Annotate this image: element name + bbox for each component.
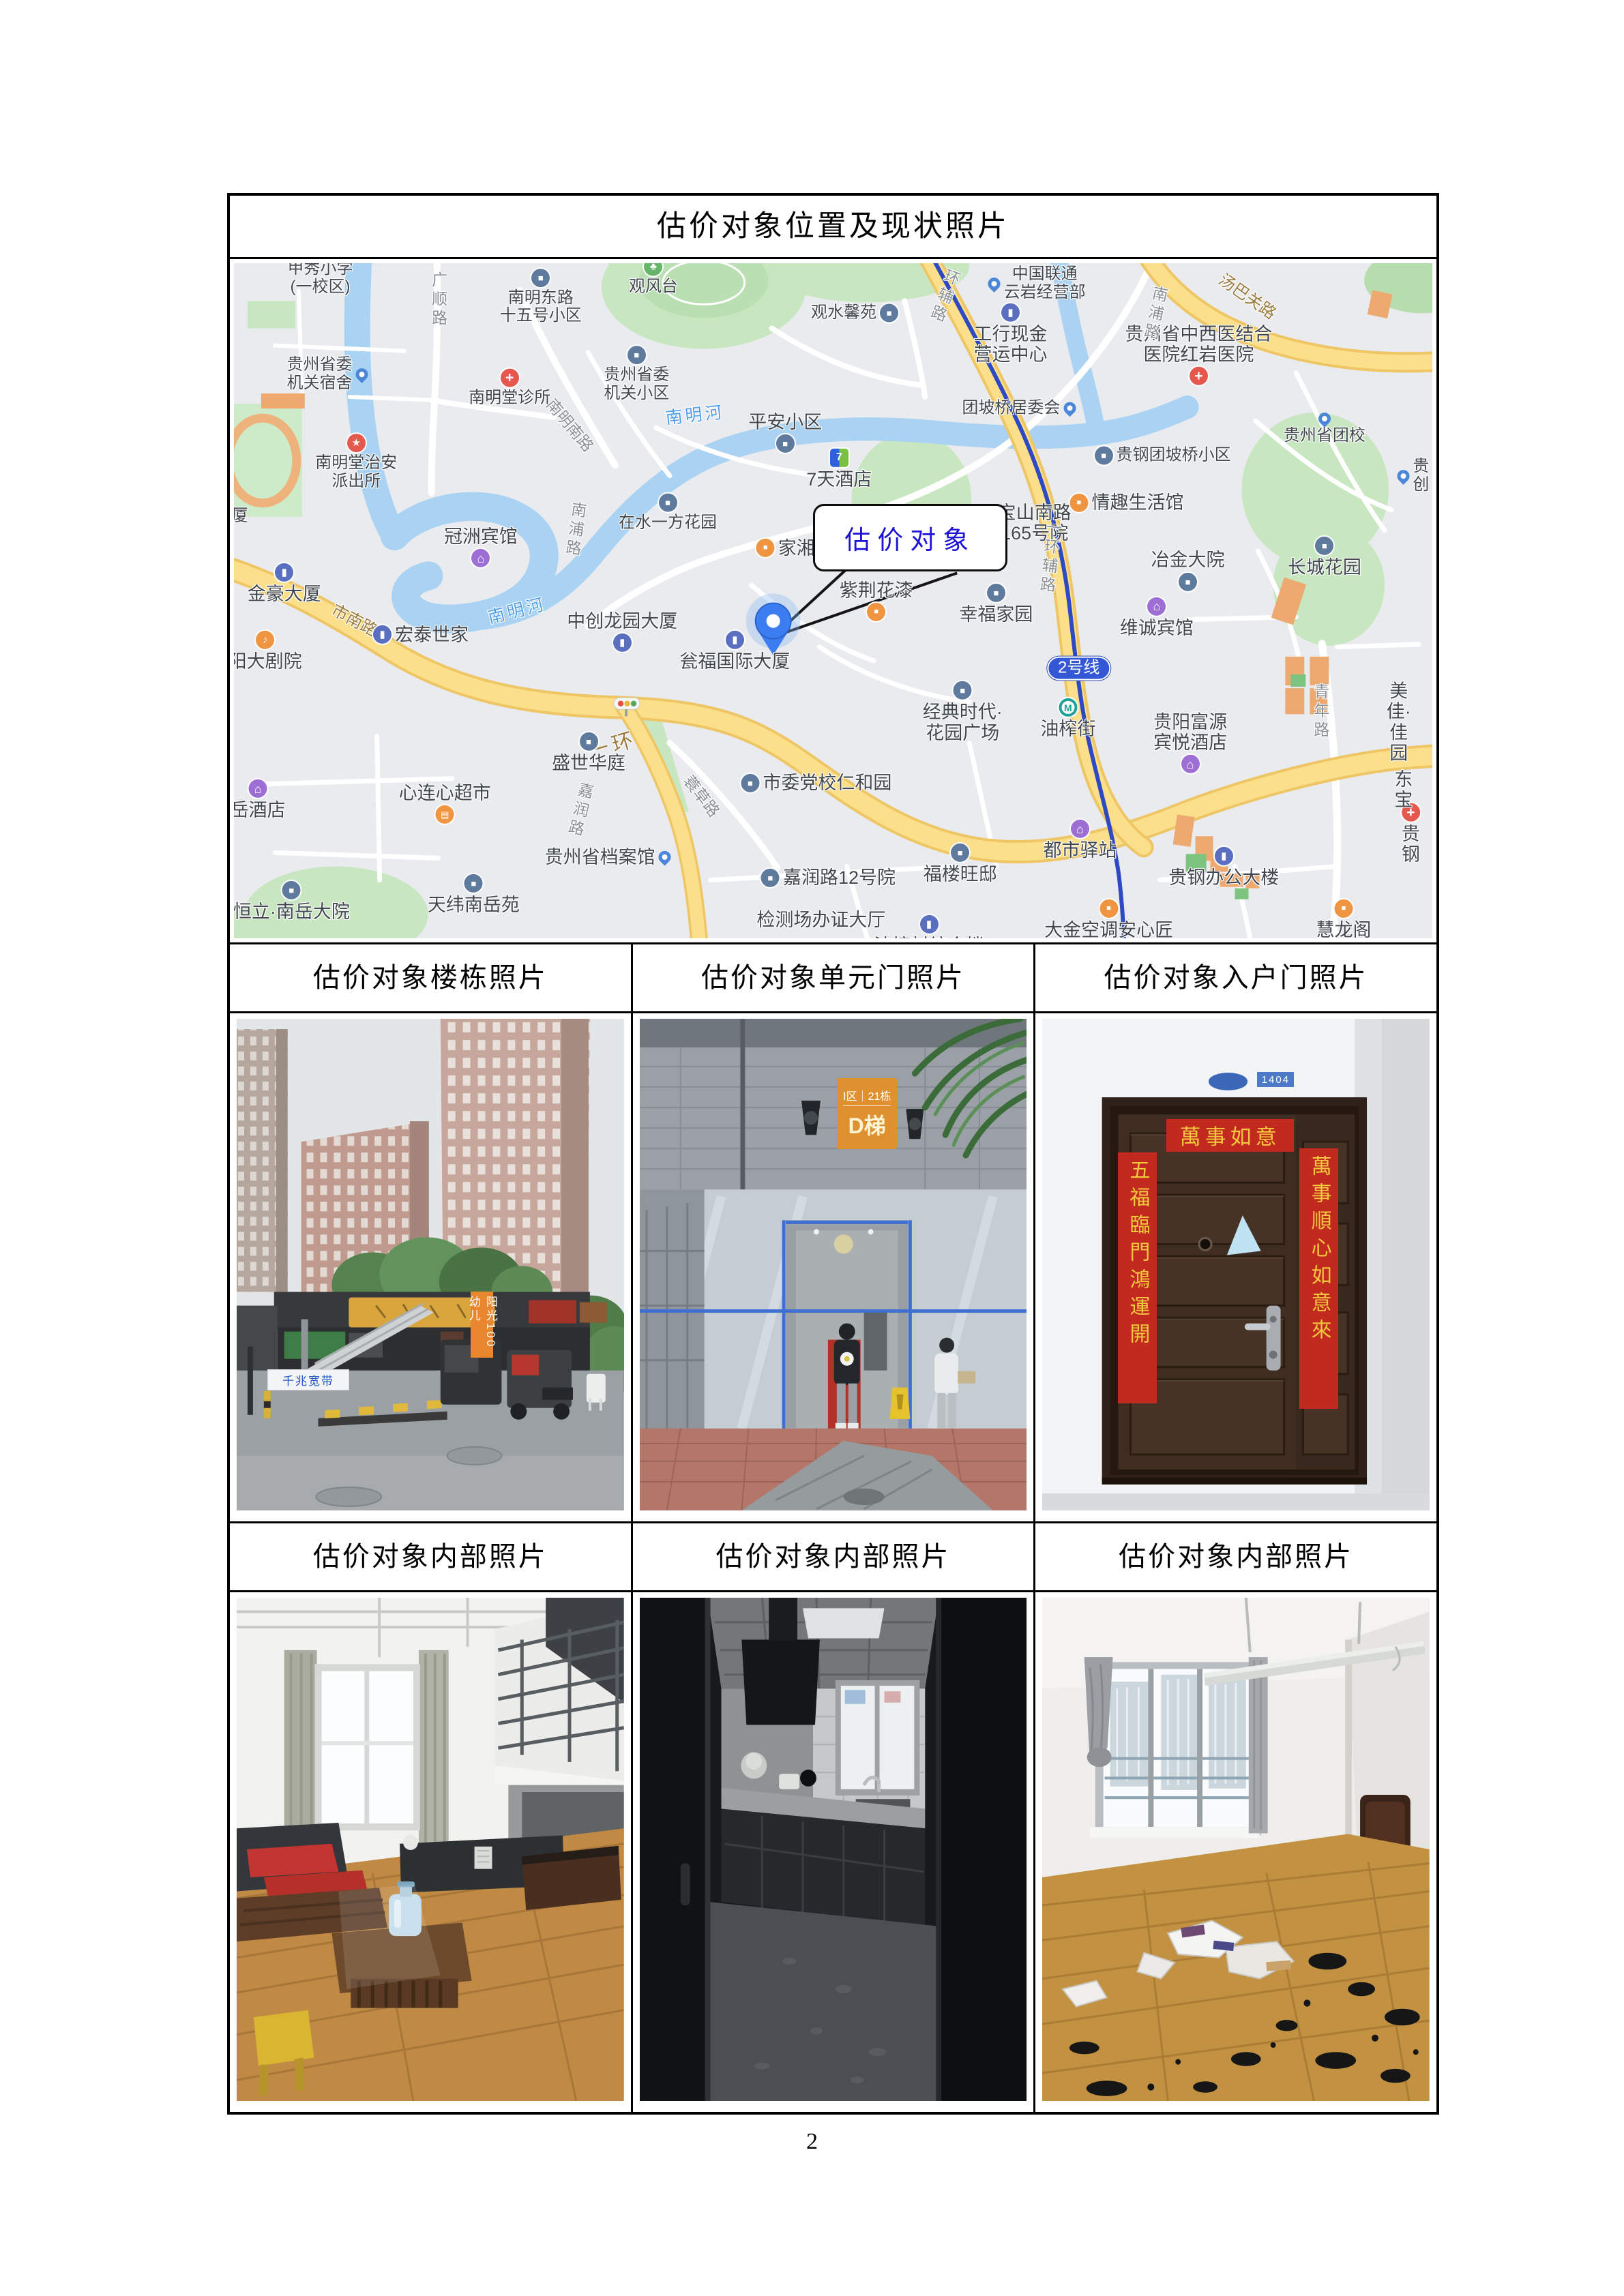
map-pin-icon bbox=[986, 275, 1003, 292]
map-label: ♣观风台 bbox=[629, 263, 678, 296]
map-label: 甲秀小学 (一校区) bbox=[288, 263, 353, 297]
shop-icon: ■ bbox=[756, 539, 775, 557]
building-icon: ▮ bbox=[920, 915, 939, 934]
map-label: ■盛世华庭 bbox=[552, 732, 625, 773]
map-label: 检测场办证大厅 bbox=[756, 910, 885, 930]
building-icon: ▮ bbox=[1215, 847, 1233, 865]
map-label: 77天酒店 bbox=[806, 449, 872, 490]
photo-row-bottom bbox=[230, 1590, 1436, 2112]
map-label: 贵创 bbox=[1397, 458, 1429, 494]
door-plate-left bbox=[1209, 1073, 1247, 1090]
map-label: ■福楼旺邸 bbox=[924, 844, 997, 884]
map-label: ▮工行现金 营运中心 bbox=[974, 303, 1048, 365]
map-label: ■天纬南岳苑 bbox=[428, 874, 520, 915]
map-label: ▮宏泰世家 bbox=[373, 624, 469, 644]
location-map: 甲秀小学 (一校区)广顺路■南明东路 十五号小区♣观风台观水馨苑■中国联通 云岩… bbox=[234, 263, 1432, 938]
building-icon: ▮ bbox=[275, 563, 293, 582]
header-entry-door-photo: 估价对象入户门照片 bbox=[1033, 944, 1436, 1011]
caution-sign bbox=[889, 1388, 910, 1419]
page-number: 2 bbox=[0, 2129, 1624, 2155]
theater-icon: ♪ bbox=[256, 631, 274, 649]
door-photo-art bbox=[1042, 1019, 1430, 1510]
map-label: 中创龙园大厦▮ bbox=[567, 610, 677, 651]
building-icon: ▮ bbox=[1001, 303, 1020, 322]
map-label: ♪阳大剧院 bbox=[234, 631, 302, 672]
map-label: 团坡桥居委会 bbox=[962, 399, 1076, 417]
photo-unit-entrance: Ⅰ区｜21栋 D梯 bbox=[640, 1019, 1027, 1510]
map-label: ■嘉润路12号院 bbox=[761, 867, 896, 888]
photo-entry-door: 1404 萬事如意 五福臨門鴻運開 萬事順心如意來 bbox=[1042, 1019, 1430, 1510]
shop-icon: ■ bbox=[1099, 899, 1118, 918]
map-label: ▮金豪大厦 bbox=[248, 563, 321, 604]
hotel-icon: ⌂ bbox=[1181, 755, 1200, 773]
map-label: ▮油榨村综合楼 bbox=[874, 915, 984, 938]
residential-area-icon: ■ bbox=[282, 880, 301, 899]
map-label: ⌂岳酒店 bbox=[234, 779, 286, 820]
photo-building: 阳光100幼儿 千兆宽带 bbox=[237, 1019, 624, 1510]
residential-area-icon: ■ bbox=[628, 346, 646, 364]
header-building-photo: 估价对象楼栋照片 bbox=[230, 944, 631, 1011]
entrance-photo-art bbox=[640, 1019, 1027, 1510]
residential-area-icon: ■ bbox=[776, 434, 795, 453]
map-pin-icon bbox=[1061, 400, 1078, 417]
residential-area-icon: ■ bbox=[880, 304, 898, 323]
map-label: ⌂维诚宾馆 bbox=[1120, 597, 1194, 638]
map-label: ★南明堂治安 派出所 bbox=[315, 434, 397, 491]
residential-area-icon: ■ bbox=[1315, 537, 1333, 555]
door-banner: 萬事如意 bbox=[1166, 1119, 1294, 1152]
map-label: 贵州省档案馆 bbox=[545, 847, 671, 867]
hotel-icon: ⌂ bbox=[1071, 820, 1089, 838]
map-label: +南明堂诊所 bbox=[469, 369, 550, 408]
map-label: 冶金大院■ bbox=[1151, 550, 1225, 591]
hospital-icon: + bbox=[501, 369, 519, 387]
map-cell: 甲秀小学 (一校区)广顺路■南明东路 十五号小区♣观风台观水馨苑■中国联通 云岩… bbox=[230, 259, 1436, 942]
map-label: ■慧龙阁 bbox=[1316, 899, 1371, 938]
map-label: ■南明东路 十五号小区 bbox=[500, 269, 582, 326]
map-label: ▮瓮福国际大厦 bbox=[679, 631, 790, 672]
map-label: ■长城花园 bbox=[1288, 537, 1361, 578]
header-unit-door-photo: 估价对象单元门照片 bbox=[631, 944, 1034, 1011]
map-label: ■大金空调安心匠 bbox=[1044, 899, 1173, 938]
hotel-icon: ⌂ bbox=[471, 549, 490, 567]
map-label: 贵州省委 机关宿舍 bbox=[287, 356, 368, 393]
metro-station-icon: M bbox=[1059, 698, 1077, 717]
map-label: 紫荆花漆■ bbox=[840, 580, 913, 621]
header-interior-2: 估价对象内部照片 bbox=[631, 1523, 1034, 1590]
map-pin-icon bbox=[353, 366, 370, 383]
door-plate-number: 1404 bbox=[1257, 1072, 1294, 1087]
residential-area-icon: ■ bbox=[954, 681, 972, 700]
residential-area-icon: ■ bbox=[580, 732, 598, 751]
header-interior-1: 估价对象内部照片 bbox=[230, 1523, 631, 1590]
cell-unit-door-photo: Ⅰ区｜21栋 D梯 bbox=[631, 1013, 1034, 1521]
map-label: 广顺路 bbox=[429, 271, 447, 329]
map-label: 平安小区■ bbox=[748, 411, 822, 452]
map-callout: 估价对象 bbox=[813, 504, 1007, 571]
hotel-icon: ⌂ bbox=[1147, 597, 1166, 616]
park-icon: ♣ bbox=[644, 263, 662, 275]
map-label: ■幸福家园 bbox=[959, 584, 1033, 625]
shop-icon: ■ bbox=[1069, 494, 1088, 512]
map-pin-icon bbox=[1395, 467, 1412, 484]
cell-interior-3 bbox=[1033, 1592, 1436, 2112]
map-pin-icon bbox=[656, 848, 673, 865]
cell-interior-1 bbox=[230, 1592, 631, 2112]
photo-row-top: 阳光100幼儿 千兆宽带 bbox=[230, 1011, 1436, 1521]
map-label: 东宝 bbox=[1389, 769, 1418, 810]
map-pin-icon bbox=[1316, 410, 1333, 427]
map-label: 冠洲宾馆⌂ bbox=[444, 526, 518, 567]
map-label: 美佳·佳园 bbox=[1382, 681, 1415, 764]
map-label: +贵钢 bbox=[1400, 803, 1422, 864]
map-label: 观水馨苑■ bbox=[811, 304, 898, 323]
door-couplet-right: 萬事順心如意來 bbox=[1299, 1148, 1338, 1409]
map-label: M油榨街 bbox=[1040, 698, 1095, 739]
map-row: 甲秀小学 (一校区)广顺路■南明东路 十五号小区♣观风台观水馨苑■中国联通 云岩… bbox=[230, 257, 1436, 942]
living-photo-art bbox=[237, 1598, 624, 2101]
police-star-icon: ★ bbox=[347, 434, 366, 452]
map-label: 贵阳富源 宾悦酒店⌂ bbox=[1153, 712, 1227, 773]
hotel-icon: ⌂ bbox=[249, 779, 267, 798]
map-label: ⌂都市驿站 bbox=[1043, 820, 1117, 861]
unit-number-sign: Ⅰ区｜21栋 D梯 bbox=[837, 1078, 897, 1150]
title-row: 估价对象位置及现状照片 bbox=[230, 196, 1436, 257]
map-label: 心连心超市▤ bbox=[399, 783, 491, 824]
map-label: 青年路 bbox=[1311, 683, 1329, 741]
building-icon: ▮ bbox=[613, 633, 632, 652]
photo-interior-kitchen bbox=[640, 1598, 1027, 2101]
photo-interior-room bbox=[1042, 1598, 1430, 2101]
kitchen-photo-art bbox=[640, 1598, 1027, 2101]
building-banner: 千兆宽带 bbox=[267, 1369, 349, 1390]
cell-building-photo: 阳光100幼儿 千兆宽带 bbox=[230, 1013, 631, 1521]
header-interior-3: 估价对象内部照片 bbox=[1033, 1523, 1436, 1590]
map-label: ■恒立·南岳大院 bbox=[234, 880, 350, 921]
residential-area-icon: ■ bbox=[1179, 573, 1197, 591]
cell-interior-2 bbox=[631, 1592, 1034, 2112]
map-label: ■市委党校仁和园 bbox=[741, 773, 891, 793]
building-icon: ▮ bbox=[373, 625, 392, 644]
residential-area-icon: ■ bbox=[1095, 447, 1113, 465]
residential-area-icon: ■ bbox=[987, 584, 1005, 602]
photo-interior-living bbox=[237, 1598, 624, 2101]
shop-icon: ■ bbox=[1334, 899, 1353, 918]
room-photo-art bbox=[1042, 1598, 1430, 2101]
residential-area-icon: ■ bbox=[464, 874, 483, 893]
building-photo-art bbox=[237, 1019, 624, 1510]
map-label: 厦 bbox=[234, 507, 248, 526]
hospital-icon: + bbox=[1190, 367, 1208, 385]
shop-icon: ■ bbox=[867, 603, 885, 621]
residential-area-icon: ■ bbox=[951, 844, 969, 862]
map-callout-label: 估价对象 bbox=[844, 519, 975, 556]
header-row-bottom: 估价对象内部照片 估价对象内部照片 估价对象内部照片 bbox=[230, 1521, 1436, 1590]
map-label: 贵州省团校 bbox=[1284, 413, 1365, 445]
building-vertical-sign: 阳光100幼儿 bbox=[471, 1292, 493, 1358]
map-label: 中国联通 云岩经营部 bbox=[988, 265, 1086, 302]
door-couplet-left: 五福臨門鴻運開 bbox=[1118, 1152, 1157, 1403]
map-label: ■贵钢团坡桥小区 bbox=[1095, 447, 1231, 465]
map-label: ■在水一方花园 bbox=[619, 494, 717, 533]
7days-hotel-icon: 7 bbox=[830, 449, 848, 467]
map-label: ▮贵钢办公大楼 bbox=[1168, 847, 1279, 888]
map-label: 2号线 bbox=[1047, 657, 1110, 681]
residential-area-icon: ■ bbox=[761, 868, 780, 886]
header-row-top: 估价对象楼栋照片 估价对象单元门照片 估价对象入户门照片 bbox=[230, 942, 1436, 1011]
building-icon: ▮ bbox=[726, 631, 744, 649]
map-label: ■经典时代· 花园广场 bbox=[923, 681, 1003, 743]
residential-area-icon: ■ bbox=[741, 774, 759, 792]
cell-entry-door-photo: 1404 萬事如意 五福臨門鴻運開 萬事順心如意來 bbox=[1033, 1013, 1436, 1521]
residential-area-icon: ■ bbox=[531, 269, 550, 287]
residential-area-icon: ■ bbox=[659, 494, 677, 512]
supermarket-icon: ▤ bbox=[436, 805, 454, 824]
page-title: 估价对象位置及现状照片 bbox=[230, 196, 1436, 257]
map-label: ■贵州省委 机关小区 bbox=[604, 346, 669, 403]
appraisal-photo-table: 估价对象位置及现状照片 bbox=[227, 193, 1439, 2115]
map-label: ■情趣生活馆 bbox=[1069, 492, 1183, 513]
